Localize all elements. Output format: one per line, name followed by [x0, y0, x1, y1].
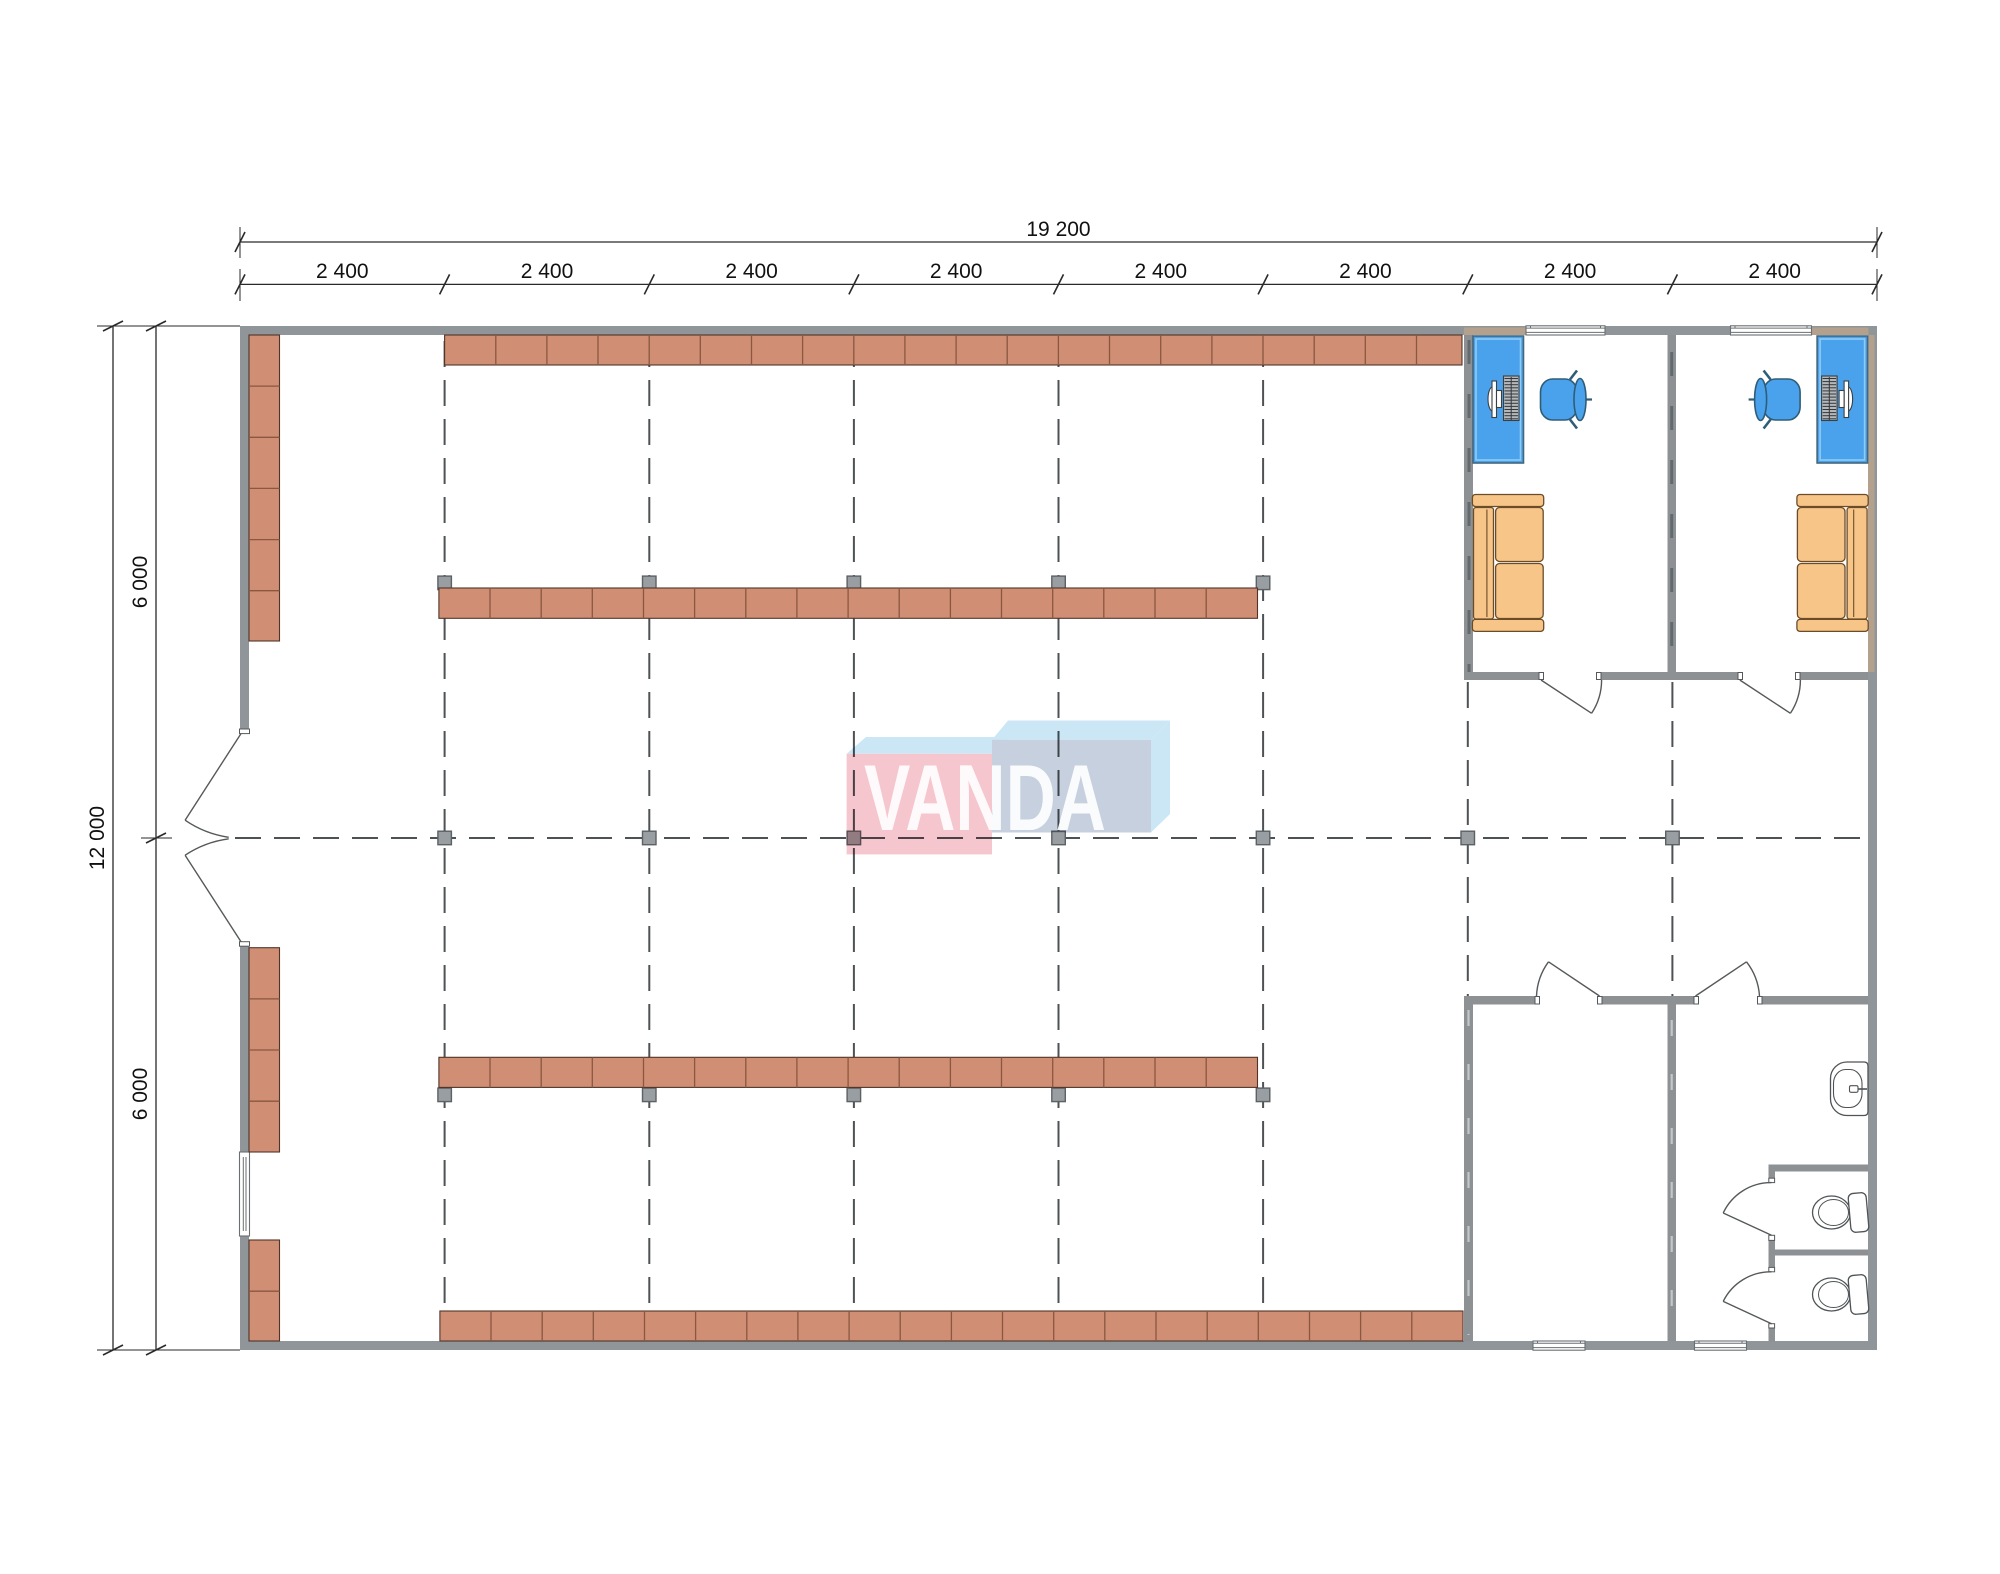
svg-text:6 000: 6 000	[129, 1068, 152, 1121]
svg-text:2 400: 2 400	[725, 260, 778, 283]
svg-text:2 400: 2 400	[1135, 260, 1188, 283]
svg-text:2 400: 2 400	[930, 260, 983, 283]
svg-text:2 400: 2 400	[1339, 260, 1392, 283]
svg-text:2 400: 2 400	[1544, 260, 1597, 283]
svg-text:6 000: 6 000	[129, 556, 152, 609]
svg-text:VANDA: VANDA	[864, 745, 1106, 850]
svg-text:19 200: 19 200	[1026, 218, 1090, 241]
svg-text:2 400: 2 400	[1748, 260, 1801, 283]
svg-text:12 000: 12 000	[86, 806, 109, 870]
svg-text:2 400: 2 400	[316, 260, 369, 283]
svg-text:2 400: 2 400	[521, 260, 574, 283]
